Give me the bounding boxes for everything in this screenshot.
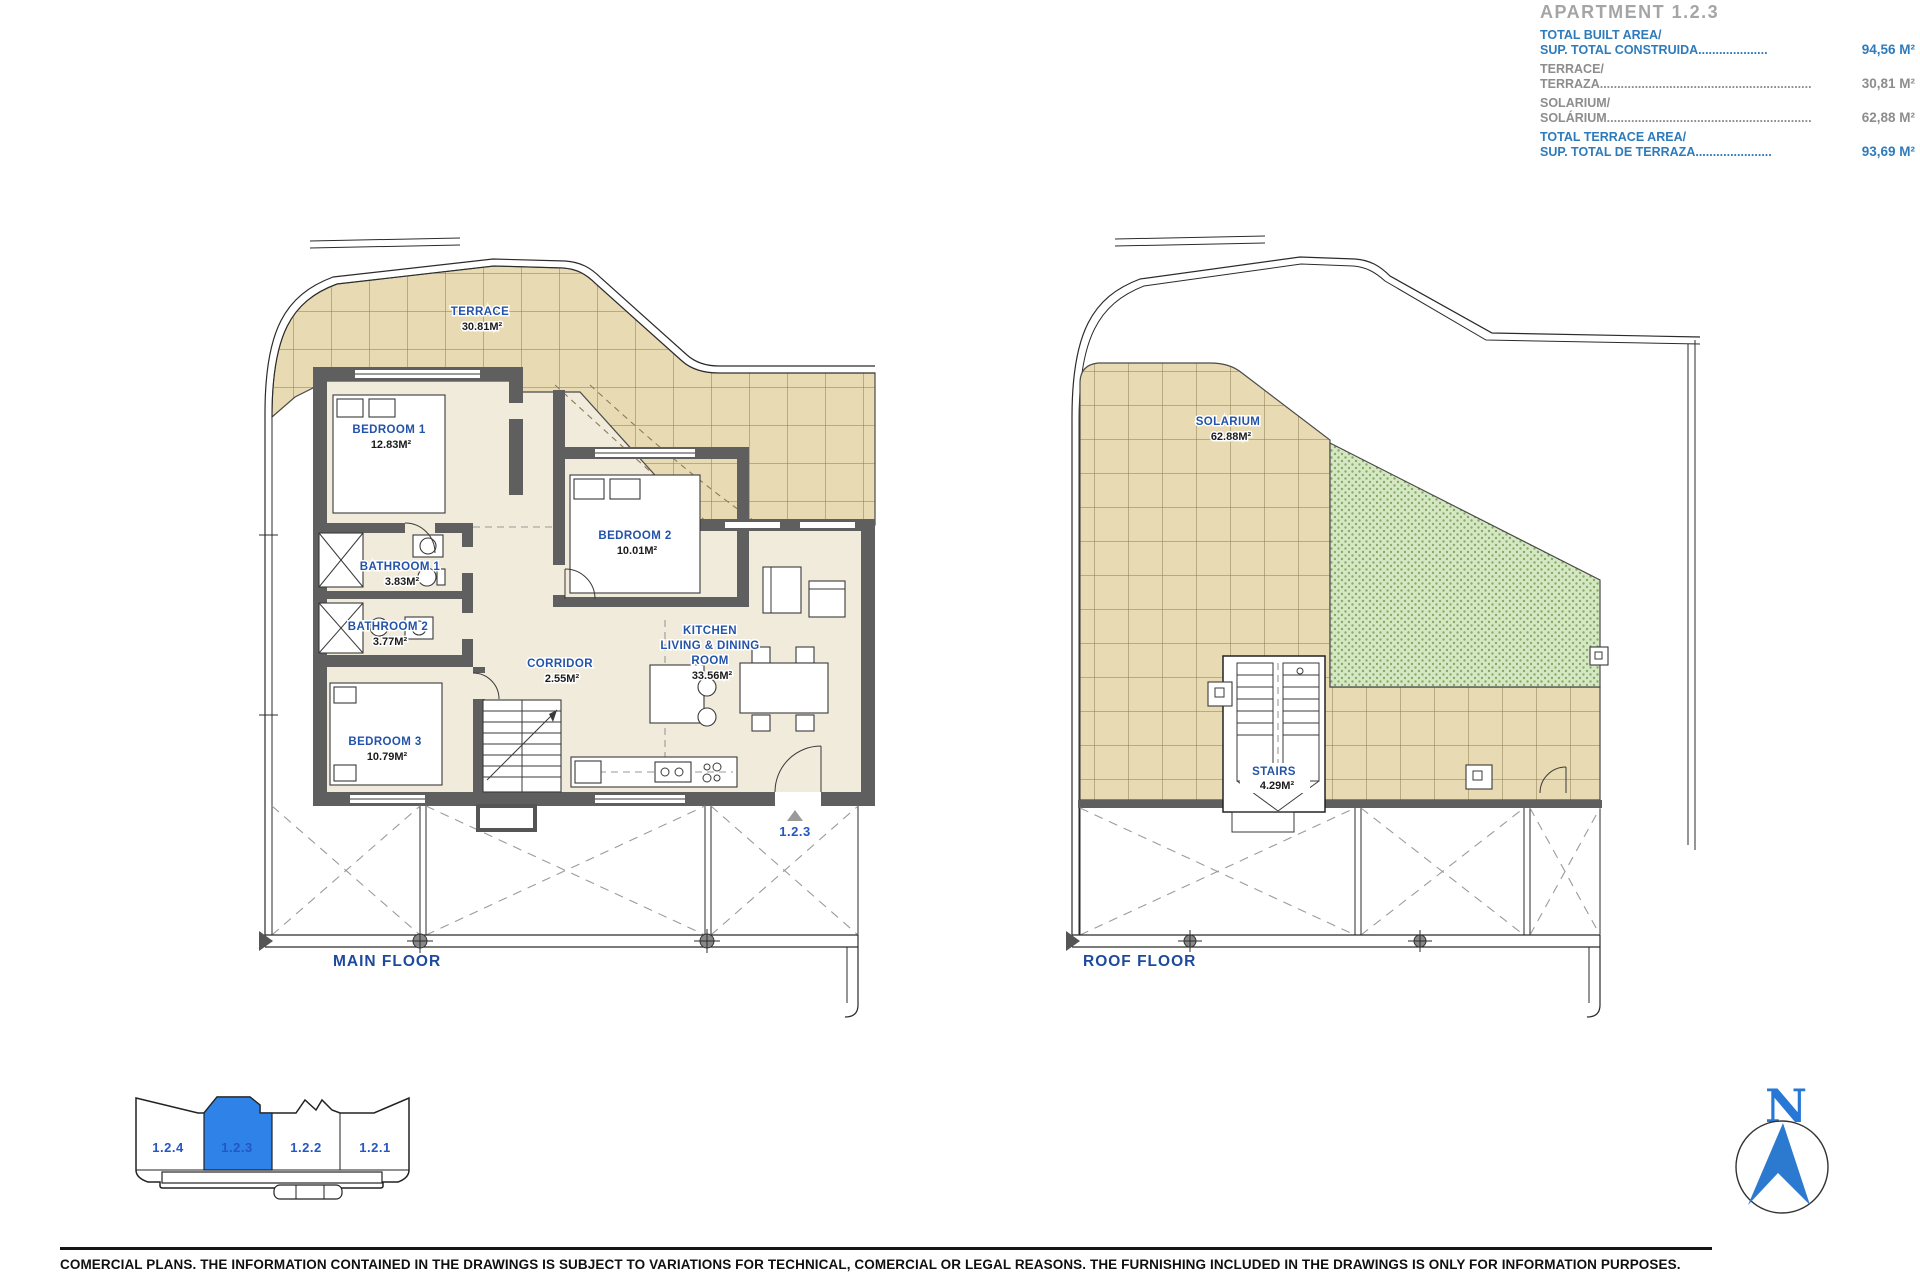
terrace-label-en: TERRACE/ (1540, 62, 1822, 77)
north-compass-icon: N (1728, 1078, 1878, 1268)
apartment-info-panel: APARTMENT 1.2.3 TOTAL BUILT AREA/ SUP. T… (1540, 2, 1915, 164)
terrace-label-es: TERRAZA.................................… (1540, 77, 1822, 92)
kitchen-counter (571, 757, 737, 787)
main-floor-title: MAIN FLOOR (333, 953, 441, 971)
kitchen-area: 33.56M² (692, 670, 733, 682)
main-floor-plan: 1.2.3 TERRACE 30.81M² BEDROOM 1 12.83M² … (255, 235, 880, 1035)
key-plan-unit-121: 1.2.1 (359, 1140, 390, 1155)
bedroom2-label: BEDROOM 2 (598, 530, 671, 542)
total-terrace-label-en: TOTAL TERRACE AREA/ (1540, 130, 1822, 145)
info-row-total-terrace: TOTAL TERRACE AREA/ SUP. TOTAL DE TERRAZ… (1540, 130, 1915, 159)
solarium-grass-area (1330, 443, 1600, 687)
floor-plan-sheet: APARTMENT 1.2.3 TOTAL BUILT AREA/ SUP. T… (0, 0, 1920, 1280)
unit-marker-label: 1.2.3 (779, 824, 810, 839)
terrace-label: TERRACE (451, 306, 509, 318)
bathroom1-area: 3.83M² (385, 576, 420, 588)
apartment-title: APARTMENT 1.2.3 (1540, 2, 1915, 23)
bedroom3-label: BEDROOM 3 (348, 736, 421, 748)
bathroom1-label: BATHROOM 1 (360, 561, 441, 573)
corridor-area: 2.55M² (545, 673, 580, 685)
unit-entrance-marker: 1.2.3 (779, 810, 810, 839)
key-plan-unit-122: 1.2.2 (290, 1140, 321, 1155)
kitchen-label-1: KITCHEN (683, 625, 737, 637)
key-plan-selected-unit (204, 1097, 272, 1170)
terrace-value: 30,81 M² (1862, 76, 1915, 91)
built-area-label-en: TOTAL BUILT AREA/ (1540, 28, 1822, 43)
solarium-area: 62.88M² (1211, 431, 1252, 443)
disclaimer: COMERCIAL PLANS. THE INFORMATION CONTAIN… (60, 1247, 1712, 1272)
structure-band-main (259, 806, 858, 1017)
solarium-label-en: SOLARIUM/ (1540, 96, 1822, 111)
key-plan-unit-123: 1.2.3 (221, 1140, 252, 1155)
structure-band-roof (1066, 808, 1600, 1017)
terrace-area: 30.81M² (462, 321, 503, 333)
solarium-value: 62,88 M² (1862, 110, 1915, 125)
info-row-built-area: TOTAL BUILT AREA/ SUP. TOTAL CONSTRUIDA.… (1540, 28, 1915, 57)
bathroom2-label: BATHROOM 2 (348, 621, 428, 633)
stairs-roof: STAIRS 4.29M² (1223, 656, 1325, 832)
built-area-label-es: SUP. TOTAL CONSTRUIDA...................… (1540, 43, 1822, 58)
bedroom2-area: 10.01M² (617, 545, 658, 557)
kitchen-label-2: LIVING & DINING (660, 640, 759, 652)
info-row-solarium: SOLARIUM/ SOLÁRIUM......................… (1540, 96, 1915, 125)
solarium-label: SOLARIUM (1196, 416, 1261, 428)
info-row-terrace: TERRACE/ TERRAZA........................… (1540, 62, 1915, 91)
total-terrace-value: 93,69 M² (1862, 144, 1915, 159)
stairs-main (483, 700, 561, 792)
key-plan-unit-124: 1.2.4 (152, 1140, 184, 1155)
roof-floor-plan: STAIRS 4.29M² SOLARIUM 6 (1060, 235, 1710, 1035)
kitchen-label-3: ROOM (691, 655, 728, 667)
building-key-plan: 1.2.4 1.2.3 1.2.2 1.2.1 (100, 1082, 430, 1217)
stairs-area: 4.29M² (1260, 780, 1295, 792)
built-area-value: 94,56 M² (1862, 42, 1915, 57)
bedroom3-area: 10.79M² (367, 751, 408, 763)
total-terrace-label-es: SUP. TOTAL DE TERRAZA...................… (1540, 145, 1822, 160)
stairs-label: STAIRS (1252, 766, 1296, 778)
bathroom2-area: 3.77M² (373, 636, 408, 648)
bedroom1-label: BEDROOM 1 (352, 424, 425, 436)
roof-floor-title: ROOF FLOOR (1083, 953, 1196, 971)
bed-bedroom3 (330, 683, 442, 785)
solarium-label-es: SOLÁRIUM................................… (1540, 111, 1822, 126)
corridor-label: CORRIDOR (527, 658, 593, 670)
bed-bedroom1 (333, 395, 445, 513)
bedroom1-area: 12.83M² (371, 439, 412, 451)
